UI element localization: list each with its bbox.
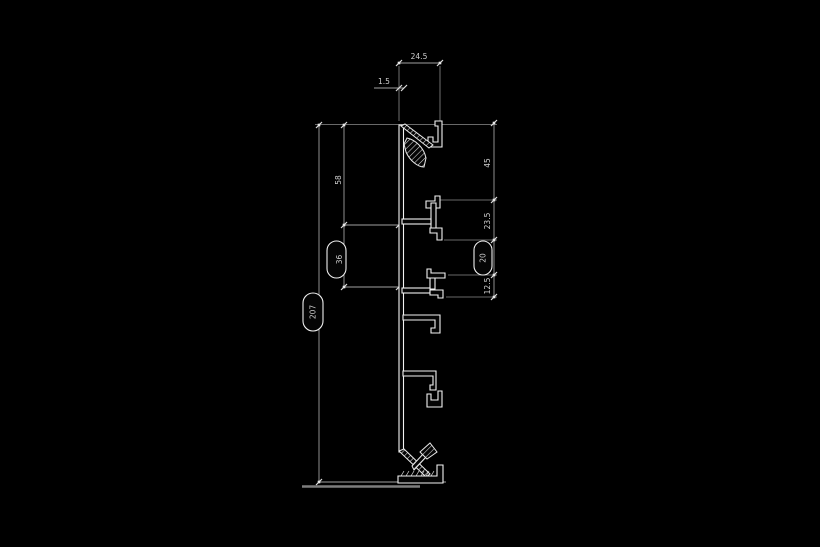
groove-a-connector	[402, 219, 431, 224]
dim-label-right-lower: 12.5	[483, 277, 492, 294]
dim-label-top-width: 24.5	[411, 52, 428, 61]
drawing-background	[0, 0, 820, 547]
dim-label-left-upper: 58	[334, 175, 343, 185]
dim-label-right-balloon: 20	[479, 253, 488, 263]
technical-drawing: 24.5 1.5 58 36 207 45 23.5 20 12.5	[0, 0, 820, 547]
groove-b-connector	[402, 288, 430, 293]
dim-label-overall-height: 207	[309, 305, 318, 320]
groove-a-channel	[431, 203, 436, 228]
dim-label-right-upper: 45	[483, 158, 492, 168]
groove-b-channel	[430, 278, 435, 289]
dim-label-right-mid: 23.5	[483, 212, 492, 229]
dim-label-left-lower-balloon: 36	[335, 255, 344, 265]
dim-label-top-small: 1.5	[378, 77, 390, 86]
